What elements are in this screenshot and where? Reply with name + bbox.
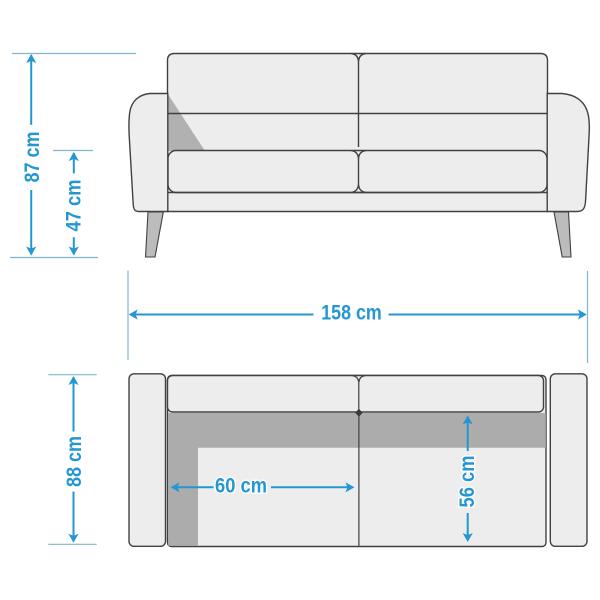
svg-text:56 cm: 56 cm [456, 456, 479, 508]
svg-text:87 cm: 87 cm [21, 132, 44, 183]
svg-text:158 cm: 158 cm [321, 302, 382, 325]
svg-text:88 cm: 88 cm [63, 436, 86, 487]
svg-text:60 cm: 60 cm [215, 475, 267, 498]
svg-text:47 cm: 47 cm [63, 180, 86, 232]
